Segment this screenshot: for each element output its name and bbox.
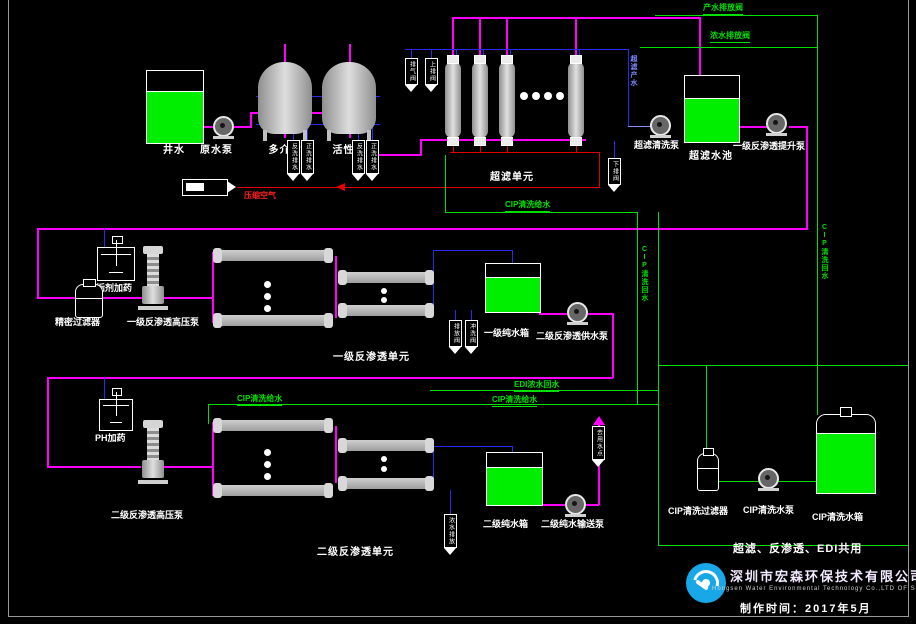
pipe-segment <box>614 141 615 158</box>
tank-headspace <box>685 76 739 99</box>
ro2-transfer-pump-icon <box>563 493 587 517</box>
tank-headspace <box>817 415 875 434</box>
pipe-segment <box>655 15 818 16</box>
ro2-membrane-housing <box>215 420 331 431</box>
valve-tag-ro2-drain: 浓水排放 <box>444 514 457 555</box>
arrow-left <box>336 183 345 191</box>
cip-tank <box>816 414 876 494</box>
tank-water-fill <box>486 278 540 312</box>
cip-tank-label: CIP清洗水箱 <box>812 510 863 523</box>
more-units-dot <box>381 456 387 462</box>
cip-tank-vent <box>840 407 852 417</box>
uf-column-cap <box>570 55 582 64</box>
ro2-membrane-housing <box>340 478 432 489</box>
tank-water-fill <box>487 468 542 505</box>
uf-membrane-column <box>445 62 461 138</box>
uf-column-cap <box>501 137 513 146</box>
pipe-segment <box>706 365 707 455</box>
pipe-segment <box>817 15 818 415</box>
uf-cleaning-pump-label: 超滤清洗泵 <box>634 138 679 151</box>
ro1-pure-tank-label: 一级纯水箱 <box>484 326 529 339</box>
valve-tag-use-point: 去用水点 <box>592 426 605 467</box>
ro1-pure-water-tank <box>485 263 541 313</box>
uf-column-cap <box>447 55 459 64</box>
activated-carbon-vessel <box>322 62 376 134</box>
edi-concentrate-label: EDI浓水回水 <box>514 379 559 392</box>
ro1-lift-pump-icon <box>764 112 788 136</box>
valve-tag-uf-bottom-drain: 下排阀 <box>608 158 621 192</box>
pipe-segment <box>576 145 577 152</box>
uf-column-cap <box>570 137 582 146</box>
pipe-segment <box>237 187 600 188</box>
pipe-segment <box>37 228 807 230</box>
ro1-hp-pump-icon <box>138 246 168 312</box>
pipe-segment <box>445 212 638 213</box>
more-units-dot <box>264 449 271 456</box>
tank-water-fill <box>817 434 875 493</box>
pipe-segment <box>471 310 472 320</box>
vessel-leg <box>263 130 267 141</box>
cip-filter-vessel <box>697 453 719 491</box>
pipe-segment <box>658 365 908 366</box>
ro2-hp-pump-label: 二级反渗透高压泵 <box>111 508 183 521</box>
more-units-dot <box>264 305 271 312</box>
more-units-dot <box>556 92 564 100</box>
arrow-up <box>593 416 605 425</box>
tank-headspace <box>486 264 540 278</box>
raw-water-tank-label: 井水 <box>146 141 202 156</box>
more-units-dot <box>381 466 387 472</box>
air-compressor-icon <box>182 179 238 196</box>
pipe-segment <box>512 250 513 264</box>
pipe-segment <box>806 126 808 230</box>
frame-left <box>8 0 9 617</box>
more-units-dot <box>264 281 271 288</box>
pipe-segment <box>539 313 567 315</box>
pipe-segment <box>104 377 105 399</box>
company-name-cn: 深圳市宏森环保技术有限公司 <box>730 566 916 585</box>
uf-product-line-label: 超滤产水 <box>630 55 637 87</box>
cip-pump-label: CIP清洗水泵 <box>743 503 794 516</box>
pipe-segment <box>628 49 629 127</box>
tank-water-fill <box>685 99 739 142</box>
more-units-dot <box>381 297 387 303</box>
raw-water-tank <box>146 70 204 144</box>
cip-return-right-label: CIP清洗回水 <box>821 224 828 280</box>
more-units-dot <box>532 92 540 100</box>
valve-tag-mm-rinse: 正洗排水 <box>301 140 314 181</box>
pipe-segment <box>433 446 513 447</box>
product-drain-label: 产水排放阀 <box>703 2 743 15</box>
shared-note: 超滤、反渗透、EDI共用 <box>733 540 862 556</box>
tank-headspace <box>147 71 203 92</box>
pipe-segment <box>658 212 659 545</box>
pipe-segment <box>575 17 577 58</box>
pipe-segment <box>452 17 700 19</box>
vessel-leg <box>327 130 331 141</box>
valve-tag-ac-rinse: 正洗排水 <box>366 140 379 181</box>
pipe-segment <box>161 466 213 468</box>
company-name-en: Hongsen Water Environmental Technology C… <box>712 586 916 592</box>
uf-column-cap <box>447 137 459 146</box>
more-units-dot <box>544 92 552 100</box>
uf-unit-label: 超滤单元 <box>490 168 534 183</box>
uf-column-cap <box>474 137 486 146</box>
ro2-pure-tank-label: 二级纯水箱 <box>483 517 528 530</box>
company-logo <box>686 563 726 603</box>
pipe-segment <box>587 313 613 315</box>
pipe-segment <box>737 126 767 128</box>
ph-dosing-label: PH加药 <box>95 431 126 444</box>
more-units-dot <box>264 293 271 300</box>
pipe-segment <box>47 466 141 468</box>
pipe-segment <box>450 152 600 153</box>
raw-water-pump-icon <box>211 115 235 139</box>
pipe-segment <box>405 49 628 50</box>
uf-column-cap <box>474 55 486 64</box>
pipe-segment <box>599 152 600 187</box>
pipe-segment <box>420 139 422 155</box>
raw-water-pump-label: 原水泵 <box>200 141 233 156</box>
uf-cleaning-pump-icon <box>648 114 672 138</box>
pipe-segment <box>480 145 481 152</box>
ro2-membrane-housing <box>215 485 331 496</box>
ro2-feed-pump-label: 二级反渗透供水泵 <box>536 329 608 342</box>
ro1-membrane-housing <box>340 272 432 283</box>
pipe-segment <box>37 228 39 299</box>
pipe-segment <box>47 377 49 468</box>
pipe-segment <box>208 404 209 424</box>
valve-tag-uf-top-drain: 上排阀 <box>425 58 438 92</box>
uf-membrane-column <box>499 62 515 138</box>
valve-tag-ro1-drain: 排放阀 <box>449 320 462 354</box>
pipe-segment <box>585 504 599 506</box>
pipe-segment <box>453 145 454 152</box>
concentrate-drain-label: 浓水排放阀 <box>710 30 750 43</box>
pipe-segment <box>378 154 422 156</box>
ro1-lift-pump-label: 一级反渗透提升泵 <box>733 139 805 152</box>
more-units-dot <box>264 473 271 480</box>
ro2-feed-pump-icon <box>565 301 589 325</box>
ro2-hp-pump-icon <box>138 420 168 486</box>
uf-column-cap <box>501 55 513 64</box>
precision-filter-label: 精密过滤器 <box>55 315 100 328</box>
uf-membrane-column <box>568 62 584 138</box>
made-date: 制作时间：2017年5月 <box>740 600 872 616</box>
valve-tag-ac-backwash: 反洗排水 <box>352 140 365 181</box>
pipe-segment <box>335 256 337 318</box>
pipe-segment <box>506 17 508 58</box>
valve-tag-uf-air-vent: 排气阀 <box>405 58 418 92</box>
cip-feed-ro2-label: CIP清洗给水 <box>237 393 282 406</box>
precision-filter-vessel <box>75 284 103 318</box>
more-units-dot <box>381 288 387 294</box>
pipe-segment <box>433 250 513 251</box>
pipe-segment <box>335 426 337 483</box>
uf-membrane-column <box>472 62 488 138</box>
pipe-segment <box>640 47 818 48</box>
ro2-unit-label: 二级反渗透单元 <box>317 543 394 558</box>
uf-water-tank <box>684 75 740 143</box>
cip-pump-icon <box>756 467 780 491</box>
ro1-hp-pump-label: 一级反渗透高压泵 <box>127 315 199 328</box>
antiscalant-dosing-tank <box>97 247 135 281</box>
ro2-pure-water-tank <box>486 452 543 506</box>
pipe-segment <box>507 145 508 152</box>
pipe-segment <box>455 310 456 320</box>
pipe-segment <box>612 313 614 378</box>
ro1-membrane-housing <box>215 315 331 326</box>
pipe-segment <box>789 126 807 128</box>
pipe-segment <box>445 155 446 212</box>
pipe-segment <box>431 49 432 58</box>
pipe-segment <box>450 490 451 514</box>
cip-feed-uf-label: CIP清洗给水 <box>505 199 550 212</box>
ro2-transfer-pump-label: 二级纯水输送泵 <box>541 517 604 530</box>
valve-tag-ro1-flush: 冲洗阀 <box>465 320 478 354</box>
process-flow-diagram: 井水 原水泵 多介质 活性炭 反洗排水 正洗排水 反洗排水 正洗排水 压缩空气 <box>0 0 916 624</box>
cip-feed-ro1-label: CIP清洗给水 <box>492 394 537 407</box>
pipe-segment <box>479 17 481 58</box>
frame-bottom <box>8 616 909 617</box>
pipe-segment <box>37 297 213 299</box>
cip-return-mid-label: CIP清洗回水 <box>641 246 648 302</box>
pipe-segment <box>541 504 565 506</box>
tank-water-fill <box>147 92 203 143</box>
frame-right <box>908 0 909 617</box>
tank-headspace <box>487 453 542 468</box>
ro2-membrane-housing <box>340 440 432 451</box>
compressed-air-label: 压缩空气 <box>244 190 276 201</box>
ph-dosing-tank <box>99 399 133 431</box>
pipe-segment <box>104 228 105 248</box>
pipe-segment <box>637 212 638 404</box>
cip-filter-label: CIP清洗过滤器 <box>668 504 728 517</box>
pipe-segment <box>411 49 412 58</box>
ro1-membrane-housing <box>340 305 432 316</box>
multimedia-filter-vessel <box>258 62 312 134</box>
more-units-dot <box>264 461 271 468</box>
ro1-unit-label: 一级反渗透单元 <box>333 348 410 363</box>
valve-tag-mm-backwash: 反洗排水 <box>287 140 300 181</box>
more-units-dot <box>520 92 528 100</box>
pipe-segment <box>452 17 454 58</box>
ro1-membrane-housing <box>215 250 331 261</box>
pipe-segment <box>250 112 252 126</box>
